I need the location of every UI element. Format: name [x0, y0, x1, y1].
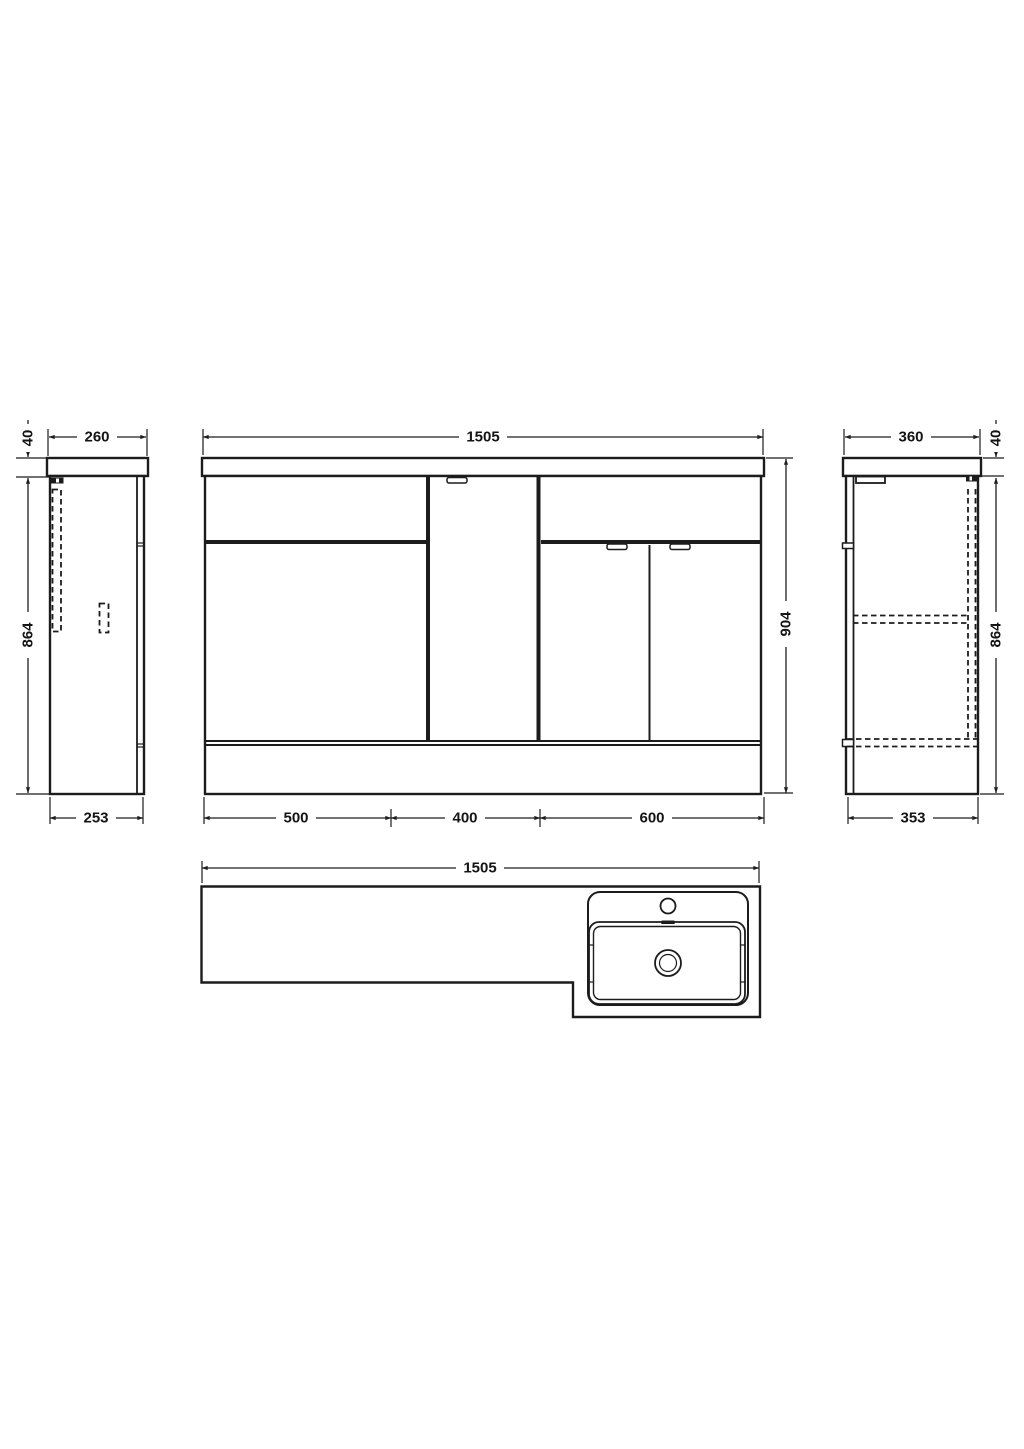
right-wall-bracket	[966, 476, 977, 482]
dim-front-total-width: 1505	[466, 429, 499, 446]
dim-right-worktop-thickness: 40	[988, 430, 1005, 447]
right-worktop	[843, 458, 981, 476]
front-right-door-left-handle	[607, 544, 627, 550]
front-middle-door-handle	[447, 478, 467, 484]
dim-left-height: 864	[20, 622, 37, 648]
left-cabinet-side	[50, 476, 144, 794]
right-door-handle-edge	[843, 543, 854, 549]
dim-left-top-width: 260	[84, 429, 109, 446]
left-worktop	[47, 458, 148, 476]
right-side-view: 360 40 864 353	[843, 420, 1005, 827]
dim-left-bottom-depth: 253	[83, 810, 108, 827]
dim-front-total-height: 904	[778, 611, 795, 637]
drawing-canvas: 40 260 864 253	[0, 0, 1024, 1449]
dim-right-height: 864	[988, 622, 1005, 648]
front-cabinet-body	[205, 476, 761, 794]
plan-view-dimensions: 1505	[202, 860, 759, 884]
dim-plan-total-width: 1505	[463, 860, 496, 877]
dim-left-worktop-thickness: 40	[20, 430, 37, 447]
left-side-view: 40 260 864 253	[16, 420, 148, 827]
front-worktop	[202, 458, 764, 476]
dim-right-top-width: 360	[898, 429, 923, 446]
technical-drawing: 40 260 864 253	[0, 0, 1024, 1449]
front-view: 1505 904 500 400 600	[202, 429, 795, 828]
dim-front-section-500: 500	[283, 810, 308, 827]
dim-front-section-400: 400	[452, 810, 477, 827]
dim-front-section-600: 600	[639, 810, 664, 827]
front-right-door-right-handle	[670, 544, 690, 550]
left-wall-bracket	[51, 478, 64, 484]
plan-view: 1505	[202, 860, 761, 1018]
right-door-bottom-joint	[843, 740, 854, 747]
dim-right-bottom-depth: 353	[900, 810, 925, 827]
